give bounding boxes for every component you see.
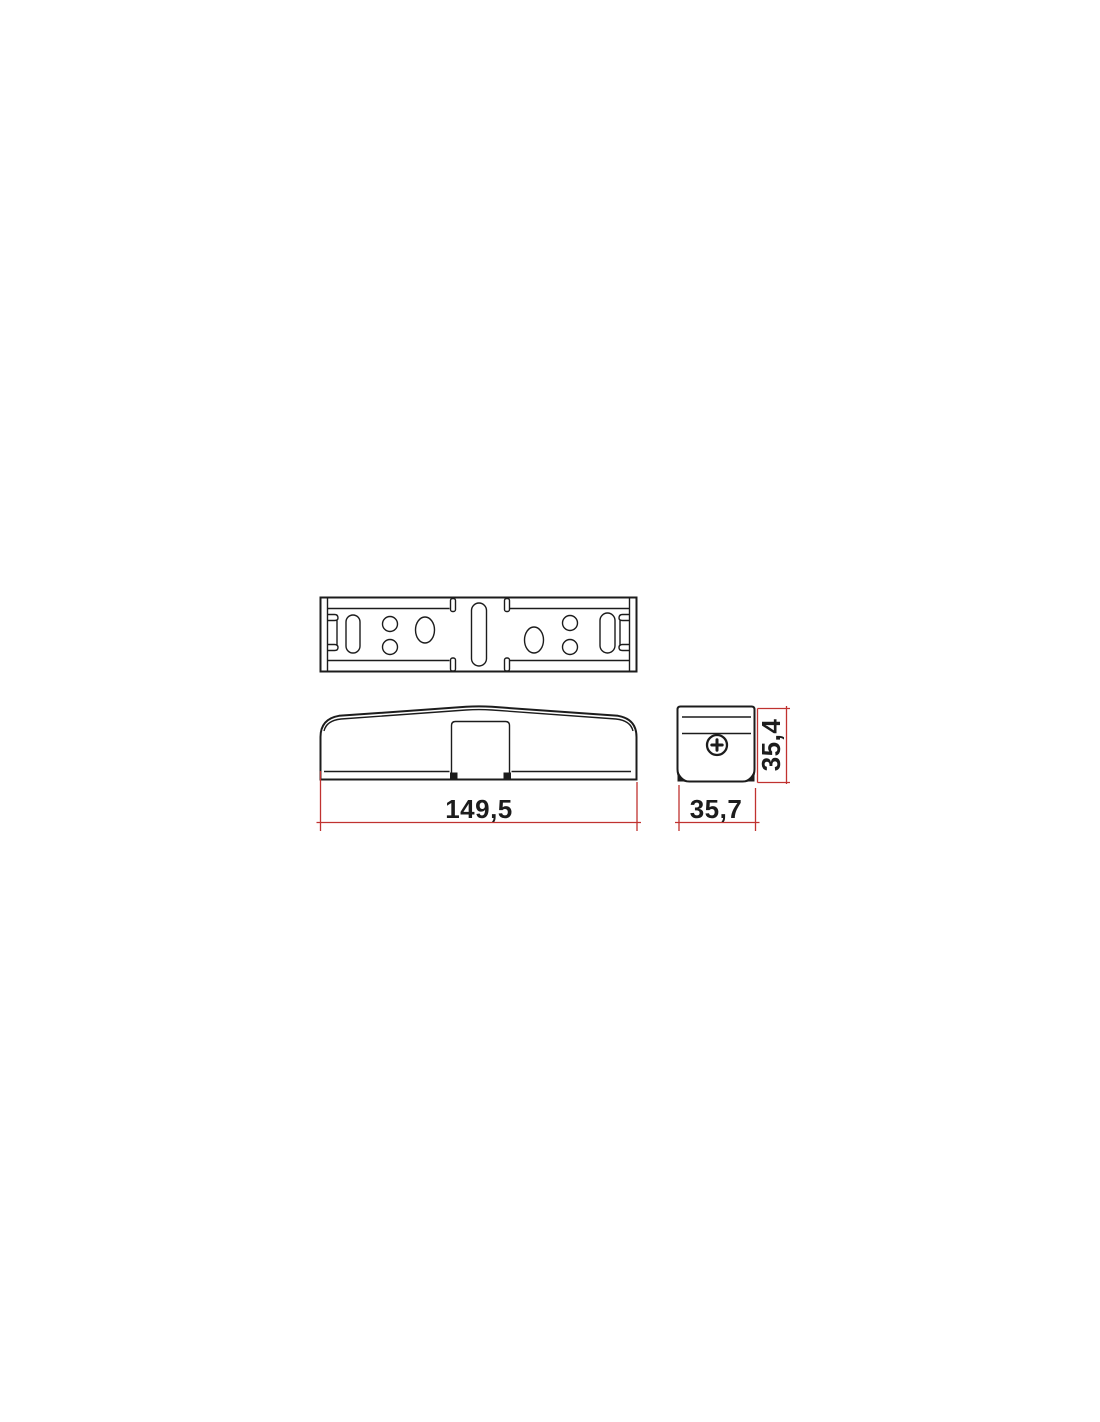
- corner-fillet-right: [742, 768, 755, 782]
- screw-cross-slot: [712, 740, 722, 750]
- drawing-canvas: 149,5 35,7 35,4: [0, 0, 1100, 1422]
- notch-bottom-left: [451, 658, 456, 671]
- slot-hole-right: [600, 613, 615, 653]
- width-dimension-label: 35,7: [690, 794, 743, 824]
- notch-bottom-right: [505, 658, 510, 671]
- center-block-foot-left: [450, 773, 458, 781]
- length-dimension-label: 149,5: [445, 794, 513, 824]
- clip-right: [619, 615, 630, 651]
- notch-top-right: [505, 599, 510, 612]
- fold-lines: [328, 609, 630, 661]
- phillips-screw-icon: [707, 735, 727, 755]
- slot-hole-center: [472, 603, 487, 666]
- top-view: [321, 598, 637, 672]
- technical-drawing: 149,5 35,7 35,4: [0, 0, 1100, 1422]
- corner-fillet-left: [678, 768, 691, 782]
- slot-hole-left: [346, 615, 360, 653]
- center-block: [452, 722, 510, 779]
- round-hole-left-bottom: [383, 640, 398, 655]
- notch-top-left: [451, 599, 456, 612]
- oval-hole-right: [525, 627, 544, 653]
- round-hole-right-top: [563, 616, 578, 631]
- dimension-width: 35,7: [675, 785, 760, 831]
- clip-left: [328, 615, 339, 651]
- round-hole-right-bottom: [563, 640, 578, 655]
- height-dimension-label: 35,4: [756, 719, 786, 772]
- dimension-height: 35,4: [756, 706, 790, 784]
- center-block-foot-right: [504, 773, 512, 781]
- front-view: [321, 706, 637, 780]
- oval-hole-left: [416, 617, 435, 643]
- round-hole-left-top: [383, 617, 398, 632]
- side-fold-lines: [682, 717, 751, 734]
- side-view: [678, 707, 755, 782]
